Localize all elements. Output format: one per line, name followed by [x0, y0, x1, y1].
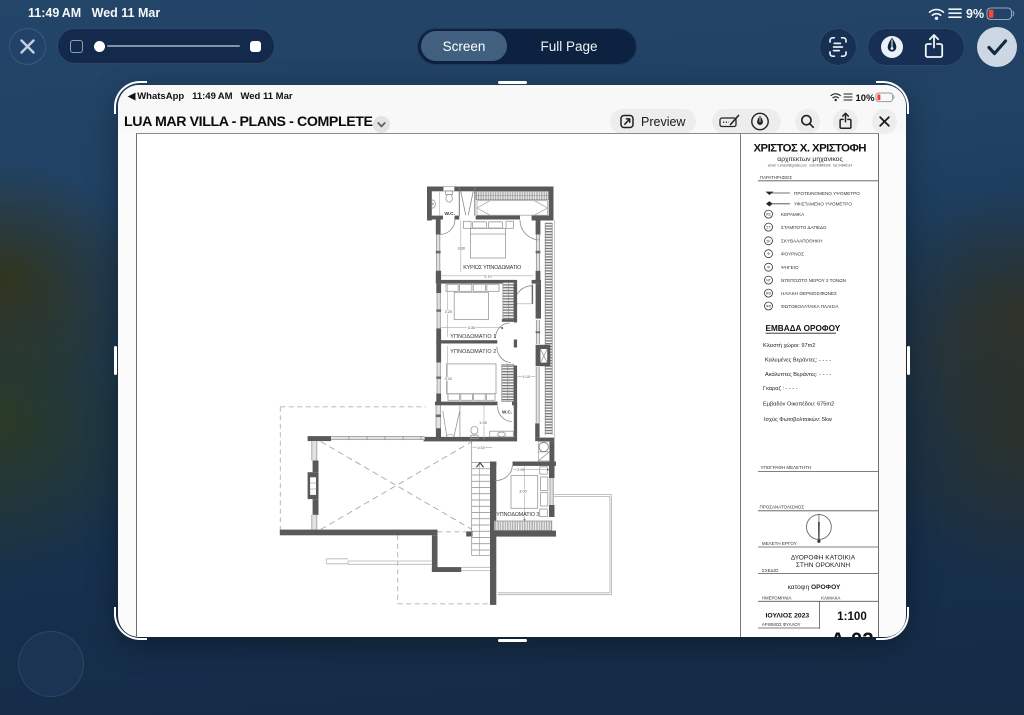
svg-text:ΕΜΒΑΔΑ ΟΡΟΦΟΥ: ΕΜΒΑΔΑ ΟΡΟΦΟΥ [766, 324, 841, 333]
svg-text:ΗΛΙΑΚΗ ΘΕΡΜΟΣΙΦΩΝΕΣ: ΗΛΙΑΚΗ ΘΕΡΜΟΣΙΦΩΝΕΣ [781, 291, 837, 296]
svg-text:ΚΥΡΙΩΣ ΥΠΝΟΔΩΜΑΤΙΟ: ΚΥΡΙΩΣ ΥΠΝΟΔΩΜΑΤΙΟ [463, 265, 521, 271]
svg-text:ΜΕΛΕΤΗ ΕΡΓΟΥ: ΜΕΛΕΤΗ ΕΡΓΟΥ [762, 541, 797, 546]
svg-text:ΥΠΝΟΔΩΜΑΤΙΟ 2: ΥΠΝΟΔΩΜΑΤΙΟ 2 [450, 349, 496, 355]
svg-text:3.20: 3.20 [445, 310, 452, 314]
svg-text:Ακάλυπτες Βεράντες: - - - -: Ακάλυπτες Βεράντες: - - - - [765, 371, 831, 378]
svg-text:ΥΠΝΟΔΩΜΑΤΙΟ 3: ΥΠΝΟΔΩΜΑΤΙΟ 3 [496, 512, 539, 518]
svg-text:3.00: 3.00 [519, 490, 526, 494]
svg-text:3.20: 3.20 [445, 377, 452, 381]
svg-text:Preview: Preview [641, 115, 686, 129]
svg-text:Κλειστή χώροι: 97m2: Κλειστή χώροι: 97m2 [763, 342, 815, 349]
svg-text:5.10: 5.10 [484, 274, 491, 278]
svg-text:1.10: 1.10 [523, 375, 530, 379]
svg-text:2.95: 2.95 [517, 468, 524, 472]
svg-text:9%: 9% [966, 7, 984, 21]
svg-text:ΣΚΥΒΑΛΑΠΟΘΗΚΗ: ΣΚΥΒΑΛΑΠΟΘΗΚΗ [781, 239, 822, 244]
svg-text:1.10: 1.10 [477, 446, 484, 450]
svg-text:1:100: 1:100 [837, 610, 867, 623]
svg-text:ΑΡΙΘΜΟΣ ΦΥΛΛΟΥ: ΑΡΙΘΜΟΣ ΦΥΛΛΟΥ [762, 622, 801, 627]
svg-text:ΠΡΟΤΕΙΝΟΜΕΝΟ ΥΨΟΜΕΤΡΟ: ΠΡΟΤΕΙΝΟΜΕΝΟ ΥΨΟΜΕΤΡΟ [794, 191, 860, 196]
svg-text:ΣΤ: ΣΤ [766, 226, 771, 230]
svg-text:ΨΗΓΕΙΟ: ΨΗΓΕΙΟ [781, 265, 799, 270]
svg-text:W.C.: W.C. [502, 410, 512, 415]
svg-text:ΝΤ: ΝΤ [766, 279, 772, 283]
svg-text:ΚΕ: ΚΕ [766, 213, 771, 217]
svg-text:ΚΕΡΑΜΙΚΑ: ΚΕΡΑΜΙΚΑ [781, 212, 805, 217]
svg-text:ΥΠΟΓΡΑΦΗ ΜΕΛΕΤΗΤΗ: ΥΠΟΓΡΑΦΗ ΜΕΛΕΤΗΤΗ [761, 465, 812, 470]
svg-text:ΚΛΙΜΑΚΑ: ΚΛΙΜΑΚΑ [821, 595, 840, 600]
svg-text:ΔΥΟΡΟΦΗ ΚΑΤΟΙΚΙΑ: ΔΥΟΡΟΦΗ ΚΑΤΟΙΚΙΑ [791, 555, 856, 562]
svg-text:ΣΚ: ΣΚ [766, 239, 771, 243]
svg-text:Γκαραζ : - - - -: Γκαραζ : - - - - [763, 386, 798, 392]
svg-text:10%: 10% [856, 93, 876, 103]
svg-text:ΙΟΥΛΙΟΣ 2023: ΙΟΥΛΙΟΣ 2023 [766, 613, 810, 620]
svg-text:ΦΩΤΟΒΟΛΑΤΑΙΚΑ ΠΛΑΙΣΙΑ: ΦΩΤΟΒΟΛΑΤΑΙΚΑ ΠΛΑΙΣΙΑ [781, 304, 840, 309]
svg-text:ΧΡΙΣΤΟΣ Χ. ΧΡΙΣΤΟΦΗ: ΧΡΙΣΤΟΣ Χ. ΧΡΙΣΤΟΦΗ [754, 143, 867, 155]
svg-text:ΣΧΕΔΙΟ: ΣΧΕΔΙΟ [762, 568, 779, 573]
svg-text:email: x.xristofi@gmail.com: email: x.xristofi@gmail.com mob:99849308… [768, 164, 853, 168]
svg-text:Ψ: Ψ [767, 266, 770, 270]
svg-text:Φ: Φ [767, 252, 770, 256]
svg-text:ΗΜΕΡΟΜΗΝΙΑ: ΗΜΕΡΟΜΗΝΙΑ [762, 595, 792, 600]
svg-text:ΦΠ: ΦΠ [766, 305, 772, 309]
svg-text:Καλυμένες Βεράντες: - - - -: Καλυμένες Βεράντες: - - - - [765, 357, 831, 364]
svg-text:ΠΑΡΑΤΗΡΗΣΕΙΣ: ΠΑΡΑΤΗΡΗΣΕΙΣ [760, 175, 792, 180]
svg-text:1.95: 1.95 [479, 421, 486, 425]
svg-text:W.C.: W.C. [444, 211, 454, 217]
svg-text:ΥΠΝΟΔΩΜΑΤΙΟ 1: ΥΠΝΟΔΩΜΑΤΙΟ 1 [450, 334, 496, 340]
svg-text:ΦΟΥΡΝΟΣ: ΦΟΥΡΝΟΣ [781, 252, 804, 257]
svg-text:ΠΡΟΣΑΝΑΤΟΛΙΣΜΟΣ: ΠΡΟΣΑΝΑΤΟΛΙΣΜΟΣ [760, 505, 805, 510]
svg-text:ΣΤΑΜΠΟΤΟ ΔΑΠΕΔΟ: ΣΤΑΜΠΟΤΟ ΔΑΠΕΔΟ [781, 225, 827, 230]
svg-text:3.30: 3.30 [468, 326, 475, 330]
svg-text:ΝΤΕΠΟΖΙΤΟ ΝΕΡΟΥ 2 ΤΟΝΩΝ: ΝΤΕΠΟΖΙΤΟ ΝΕΡΟΥ 2 ΤΟΝΩΝ [781, 278, 846, 283]
svg-text:Ισχύς Φωτοβολταικών: 5kw: Ισχύς Φωτοβολταικών: 5kw [764, 417, 833, 423]
svg-text:αρχιτεκτων μηχανικος: αρχιτεκτων μηχανικος [777, 156, 843, 163]
svg-text:ΣΤΗΝ ΟΡΟΚΛΙΝΗ: ΣΤΗΝ ΟΡΟΚΛΙΝΗ [796, 562, 851, 569]
svg-text:ΥΦΙΣΤΑΜΕΝΟ ΥΨΟΜΕΤΡΟ: ΥΦΙΣΤΑΜΕΝΟ ΥΨΟΜΕΤΡΟ [794, 202, 852, 207]
svg-text:κατοψη ΟΡΟΦΟΥ: κατοψη ΟΡΟΦΟΥ [788, 584, 841, 591]
svg-text:A.02: A.02 [830, 629, 873, 638]
svg-text:3.30: 3.30 [458, 246, 465, 250]
svg-text:Εμβαδόν Οικοπέδου: 675m2: Εμβαδόν Οικοπέδου: 675m2 [763, 400, 834, 407]
svg-text:ΗΘ: ΗΘ [766, 292, 772, 296]
